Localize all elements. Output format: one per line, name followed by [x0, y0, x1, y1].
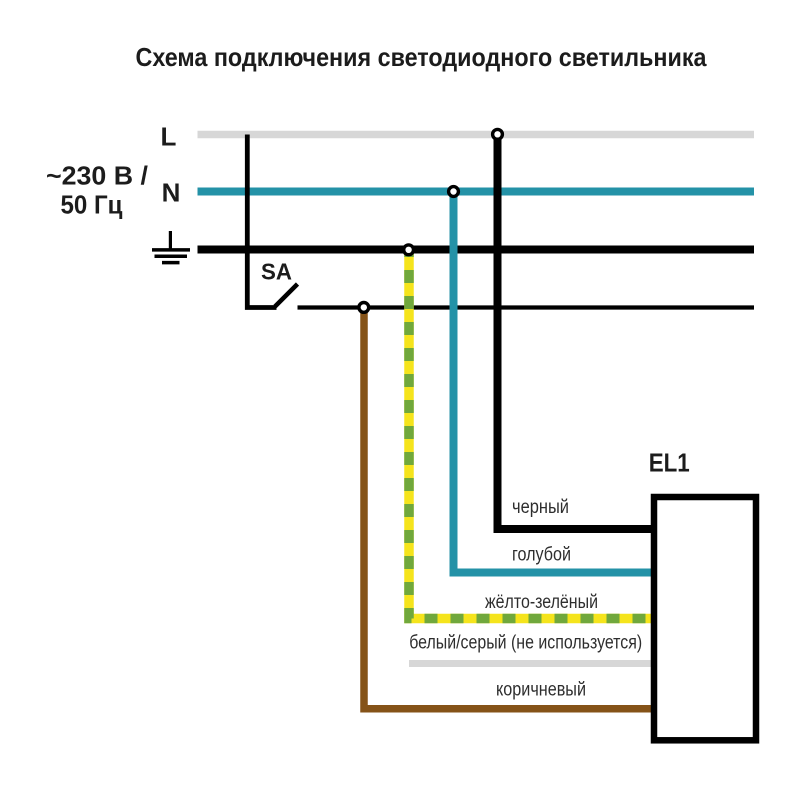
svg-text:SA: SA: [261, 259, 292, 285]
svg-text:голубой: голубой: [512, 545, 571, 566]
svg-text:черный: черный: [512, 497, 569, 518]
svg-text:L: L: [161, 122, 177, 152]
svg-text:~230 В /: ~230 В /: [46, 161, 148, 191]
svg-text:EL1: EL1: [649, 448, 690, 478]
svg-text:50 Гц: 50 Гц: [61, 190, 123, 220]
svg-text:белый/серый (не используется): белый/серый (не используется): [409, 633, 642, 654]
svg-text:Схема подключения светодиодног: Схема подключения светодиодного светильн…: [136, 42, 707, 72]
svg-text:N: N: [162, 178, 181, 208]
svg-text:коричневый: коричневый: [496, 680, 586, 701]
svg-text:жёлто-зелёный: жёлто-зелёный: [485, 592, 598, 613]
